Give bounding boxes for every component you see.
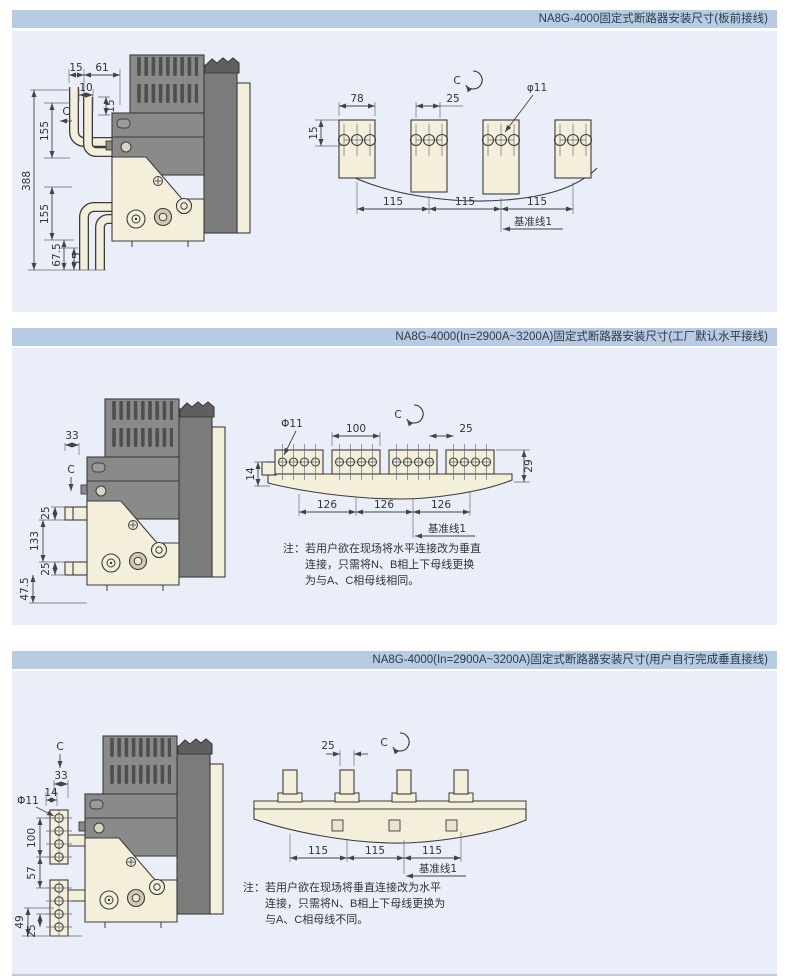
dim-label: 155 — [39, 121, 51, 141]
panel3-title: NA8G-4000(In=2900A~3200A)固定式断路器安装尺寸(用户自行… — [372, 654, 768, 666]
p3-note: 注：若用户欲在现场将垂直连接改为水平 连接，只需将N、B相上下母线更换为 与A、… — [243, 880, 445, 928]
note-line: 为与A、C相母线相同。 — [305, 573, 481, 589]
rotation-arrow-icon — [407, 405, 423, 423]
bus-left-step — [262, 462, 276, 475]
dim-label: 115 — [527, 196, 547, 208]
dim-label: 49 — [14, 915, 26, 928]
p2-note: 注：若用户欲在现场将水平连接改为垂直 连接，只需将N、B相上下母线更换 为与A、… — [283, 541, 481, 589]
dim-label: 115 — [455, 196, 475, 208]
dim-label: 15 — [69, 62, 82, 74]
p2-terminal-stubs — [65, 507, 89, 575]
hole-callout: Φ11 — [17, 795, 39, 807]
dim-label: 14 — [44, 787, 58, 799]
section-letter: C — [453, 75, 460, 87]
dim-label: 61 — [95, 62, 108, 74]
dim-label: 388 — [21, 171, 33, 191]
dim-label: 78 — [350, 93, 363, 105]
dim-label: 15 — [105, 99, 117, 112]
dim-label: 29 — [523, 459, 535, 472]
dim-label: 14 — [245, 467, 257, 481]
datum-label: 基准线1 — [514, 215, 552, 228]
dim-label: 155 — [39, 204, 51, 224]
dim-label: 126 — [317, 499, 337, 511]
busbar-holes — [339, 124, 592, 156]
note-line: 连接，只需将N、B相上下母线更换为 — [265, 896, 445, 912]
section-letter: C — [67, 464, 74, 476]
section-letter: C — [62, 106, 69, 118]
dim-label: 25 — [459, 423, 472, 435]
dim-label: 57 — [26, 866, 38, 879]
dim-label: 33 — [65, 430, 78, 442]
section-letter: C — [394, 409, 401, 421]
dim-label: 67.5 — [51, 243, 63, 266]
p3-bus-arrangement: 25 C 115 115 115 基准线1 — [240, 722, 542, 882]
dim-label: 15 — [308, 126, 320, 139]
busbar-group — [339, 120, 592, 194]
dim-label: 126 — [374, 499, 394, 511]
note-line: 与A、C相母线不同。 — [265, 912, 445, 928]
hole-callout: Φ11 — [281, 418, 303, 430]
rotation-arrow-icon — [466, 71, 482, 89]
section-letter: C — [380, 737, 387, 749]
dim-label: 33 — [54, 770, 67, 782]
panel3-title-bar: NA8G-4000(In=2900A~3200A)固定式断路器安装尺寸(用户自行… — [12, 651, 777, 669]
dim-label: 115 — [308, 845, 328, 857]
note-line: 连接，只需将N、B相上下母线更换 — [305, 557, 481, 573]
note-line: 注：若用户欲在现场将垂直连接改为水平 — [243, 880, 445, 896]
dim-label: 100 — [26, 828, 38, 848]
dim-label: 15 — [71, 252, 83, 265]
datum-label: 基准线1 — [428, 522, 466, 535]
panel2-title: NA8G-4000(In=2900A~3200A)固定式断路器安装尺寸(工厂默认… — [395, 331, 768, 343]
note-line: 注：若用户欲在现场将水平连接改为垂直 — [283, 541, 481, 557]
dim-label: 25 — [446, 93, 459, 105]
p2-bus-arrangement: Φ11 100 C 25 29 14 126 126 126 基准线1 — [250, 398, 548, 546]
p3-breaker-side-view: C 33 14 Φ11 100 57 49 25 — [10, 710, 252, 952]
panel2-title-bar: NA8G-4000(In=2900A~3200A)固定式断路器安装尺寸(工厂默认… — [12, 328, 777, 346]
breaker-symbol — [106, 55, 250, 247]
panel1-title: NA8G-4000固定式断路器安装尺寸(板前接线) — [539, 13, 768, 25]
breaker-symbol — [79, 736, 223, 928]
dim-label: 126 — [431, 499, 451, 511]
rotation-arrow-icon — [393, 733, 409, 751]
dim-label: 100 — [346, 423, 366, 435]
breaker-symbol — [81, 399, 225, 591]
dim-label: 25 — [40, 562, 52, 575]
p1-breaker-side-view: 15 61 10 C 15 388 155 155 67.5 15 — [14, 45, 276, 309]
datum-label: 基准线1 — [419, 862, 457, 875]
p1-busbar-arrangement: 78 C 25 φ11 15 115 115 115 基准线1 — [305, 62, 617, 240]
datasheet-page: NA8G-4000固定式断路器安装尺寸(板前接线) 15 61 10 C 15 — [0, 0, 790, 980]
dim-label: 25 — [40, 506, 52, 519]
p2-breaker-side-view: 33 C 25 133 25 47.5 — [15, 385, 253, 620]
dim-label: 25 — [321, 740, 334, 752]
dim-label: 133 — [29, 531, 41, 551]
dim-label: 10 — [79, 82, 92, 94]
hole-callout: φ11 — [527, 82, 547, 94]
dim-label: 115 — [422, 845, 442, 857]
dim-label: 47.5 — [19, 577, 31, 600]
section-letter: C — [56, 741, 63, 753]
panel1-title-bar: NA8G-4000固定式断路器安装尺寸(板前接线) — [12, 10, 777, 28]
dim-label: 25 — [26, 924, 38, 937]
dim-label: 115 — [365, 845, 385, 857]
dim-label: 115 — [383, 196, 403, 208]
